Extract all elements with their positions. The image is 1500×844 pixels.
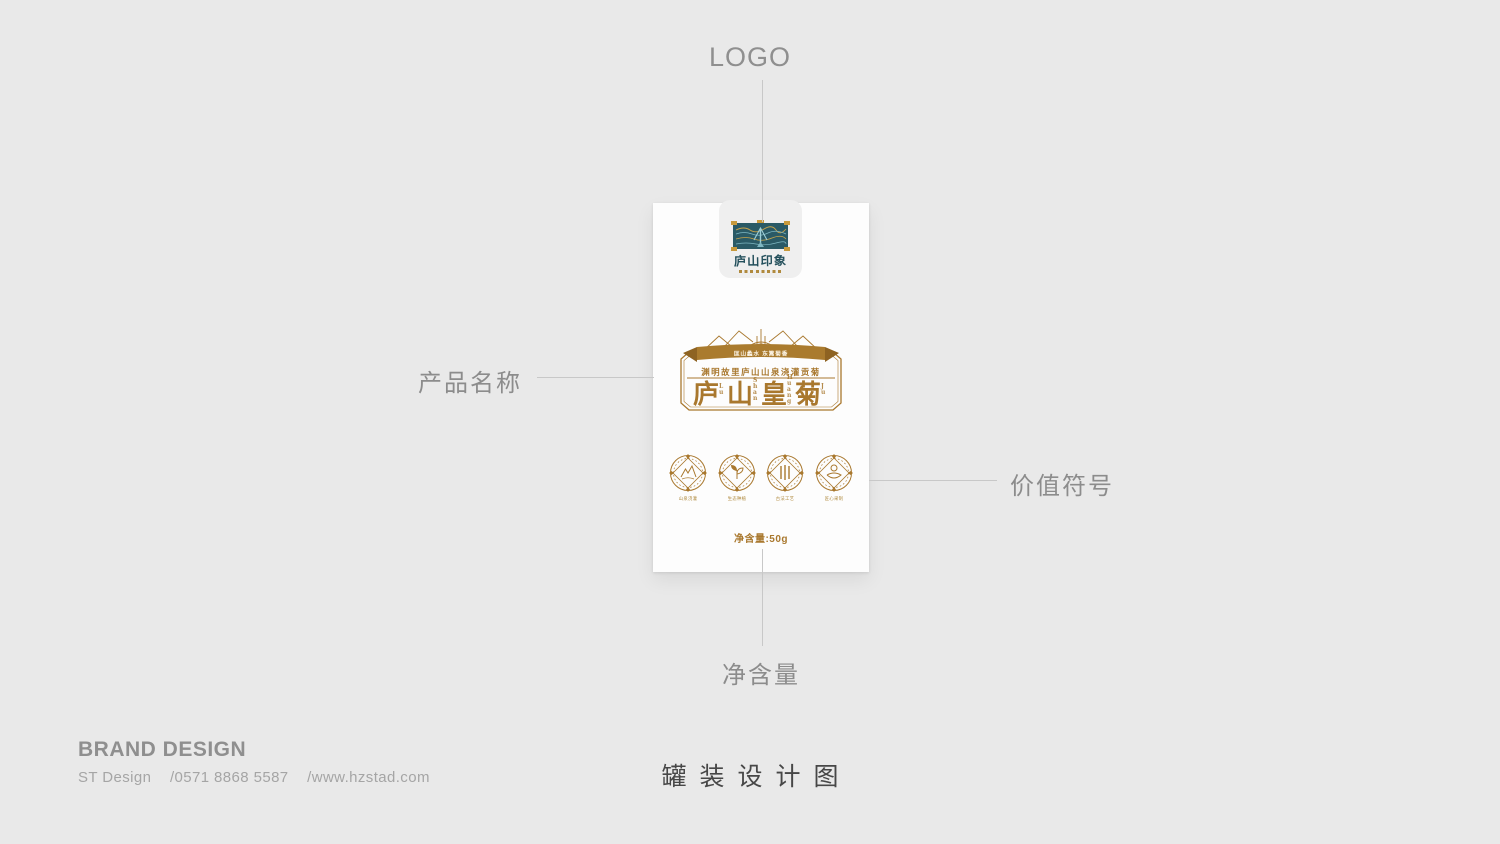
- logo-seal-marks: [739, 270, 783, 273]
- value-icon-item: 山泉浇灌: [667, 453, 709, 505]
- title-char: 山: [727, 381, 753, 409]
- product-name-connector-line: [537, 377, 654, 378]
- title-pinyin: Lu: [719, 384, 726, 396]
- title-pinyin: Ju: [821, 384, 828, 396]
- mountain-spring-icon: [668, 453, 708, 493]
- title-pinyin: Shan: [753, 378, 760, 402]
- page-caption: 罐装设计图: [0, 757, 1500, 793]
- net-content-annotation-label: 净含量: [722, 655, 800, 690]
- logo-tab: 庐山印象: [719, 200, 802, 278]
- hand-picked-icon: [814, 453, 854, 493]
- label-title: 庐Lu山Shan皇Huang菊Ju: [675, 380, 847, 410]
- net-content-text: 净含量:50g: [653, 530, 869, 545]
- title-char: 菊: [795, 381, 821, 409]
- value-icon-caption: 山泉浇灌: [679, 496, 698, 502]
- title-char: 庐: [693, 381, 719, 409]
- lushan-mountain-seal-icon: [730, 220, 791, 252]
- label-subtitle: 渊明故里庐山山泉浇灌贡菊: [680, 365, 842, 377]
- value-icon-item: 匠心采制: [813, 453, 855, 505]
- value-symbols-annotation-label: 价值符号: [1010, 466, 1114, 501]
- product-label: 匡山蠡水 东篱菊香 渊明故里庐山山泉浇灌贡菊 庐Lu山Shan皇Huang菊Ju: [675, 326, 847, 416]
- presentation-canvas: LOGO 产品名称 价值符号 净含量 庐山印象: [0, 0, 1500, 844]
- value-icon-caption: 古法工艺: [776, 496, 795, 502]
- product-name-annotation-label: 产品名称: [418, 363, 522, 398]
- eco-sprout-icon: [717, 453, 757, 493]
- value-icon-caption: 生态种植: [727, 496, 746, 502]
- value-icon-item: 生态种植: [716, 453, 758, 505]
- logo-wordmark: 庐山印象: [718, 251, 803, 270]
- logo-connector-line: [762, 80, 763, 222]
- logo-annotation-label: LOGO: [0, 42, 1500, 73]
- value-icon-item: 古法工艺: [764, 453, 806, 505]
- title-char: 皇: [761, 381, 787, 409]
- title-pinyin: Huang: [787, 375, 794, 405]
- ribbon-text: 匡山蠡水 东篱菊香: [699, 350, 823, 358]
- value-icons-row: 山泉浇灌生态种植古法工艺匠心采制: [667, 453, 855, 505]
- value-icon-caption: 匠心采制: [825, 496, 844, 502]
- bamboo-craft-icon: [765, 453, 805, 493]
- value-symbols-connector-line: [869, 480, 997, 481]
- net-content-connector-line: [762, 549, 763, 646]
